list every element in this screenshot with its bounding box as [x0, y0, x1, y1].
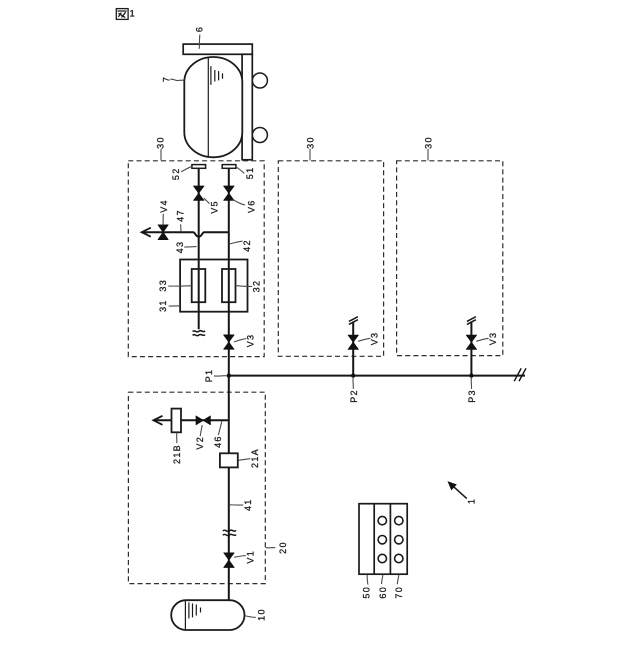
svg-text:46: 46 [213, 435, 223, 448]
svg-text:V4: V4 [159, 199, 169, 213]
svg-text:50: 50 [362, 586, 372, 599]
svg-text:10: 10 [257, 608, 267, 621]
svg-text:52: 52 [171, 167, 181, 180]
svg-text:41: 41 [243, 498, 253, 511]
svg-text:V3: V3 [488, 332, 498, 346]
svg-text:30: 30 [306, 136, 316, 149]
svg-text:V5: V5 [209, 200, 219, 214]
svg-text:32: 32 [251, 280, 261, 293]
svg-text:30: 30 [424, 136, 434, 149]
svg-text:V3: V3 [246, 334, 256, 348]
svg-text:P2: P2 [349, 389, 359, 403]
svg-text:31: 31 [158, 299, 168, 312]
svg-text:33: 33 [158, 279, 168, 292]
svg-text:42: 42 [242, 239, 252, 252]
svg-text:V2: V2 [195, 436, 205, 450]
svg-text:30: 30 [156, 136, 166, 149]
svg-text:51: 51 [245, 167, 255, 180]
svg-text:V1: V1 [246, 550, 256, 564]
svg-text:1: 1 [130, 9, 137, 20]
svg-text:6: 6 [195, 26, 205, 32]
svg-text:21B: 21B [172, 444, 182, 464]
svg-text:20: 20 [278, 541, 288, 554]
svg-text:21A: 21A [250, 448, 260, 468]
svg-text:7: 7 [162, 76, 172, 82]
svg-text:43: 43 [175, 241, 185, 254]
svg-text:70: 70 [394, 586, 404, 599]
svg-text:P3: P3 [467, 389, 477, 403]
svg-text:60: 60 [378, 586, 388, 599]
svg-text:V3: V3 [370, 332, 380, 346]
svg-text:1: 1 [467, 498, 477, 504]
svg-text:P1: P1 [204, 369, 214, 383]
svg-text:V6: V6 [247, 199, 257, 213]
svg-text:47: 47 [176, 209, 186, 222]
